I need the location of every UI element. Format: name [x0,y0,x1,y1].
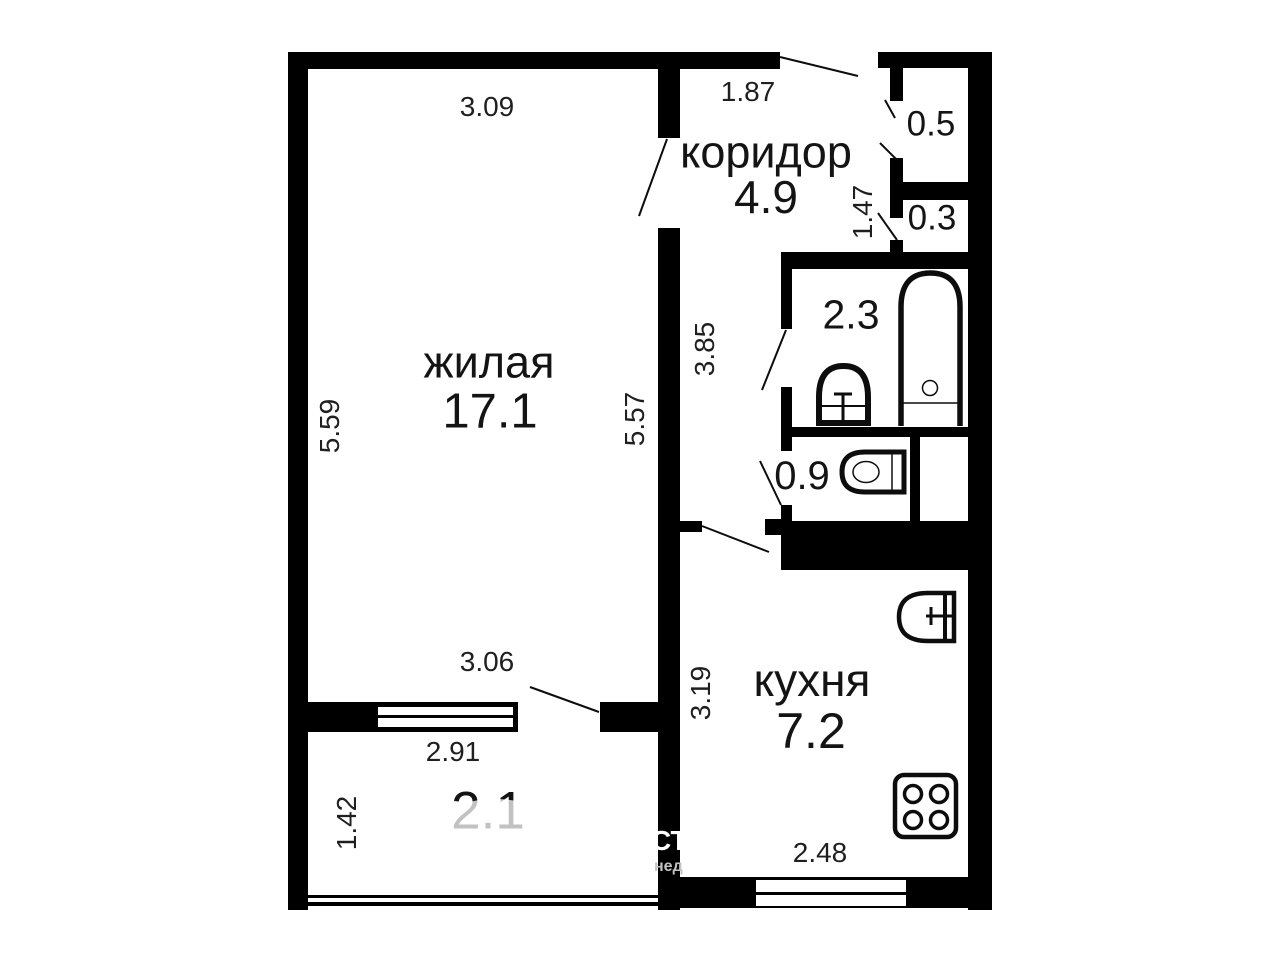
window-living-balcony [373,702,518,732]
storage-upper-area: 0.5 [907,107,956,142]
dim-living-top: 3.09 [460,93,515,121]
watermark-blob [445,799,545,843]
storage-lower-area: 0.3 [908,201,957,236]
wall-mid-upper [658,52,680,138]
stove-icon [895,775,956,837]
kitchen-sink-icon [899,593,954,641]
kitchen-name: кухня [754,657,871,703]
wall-closet-a [890,65,903,101]
dim-balcony-top: 2.91 [426,738,481,766]
dim-storage-left: 1.47 [849,185,877,240]
dim-living-right: 5.57 [621,392,649,447]
corridor-name: коридор [680,130,852,175]
watermark-line2: нед [654,859,683,875]
wall-living-bottom-left [305,702,373,732]
dim-kitchen-left: 3.19 [687,666,715,721]
entrance-door-line [780,57,858,76]
dim-living-left: 5.59 [316,399,344,454]
closet-upper-door-tick-1 [885,100,895,118]
dim-entry-top: 1.87 [721,78,776,106]
dim-corridor-left: 3.85 [691,322,719,377]
dim-living-bottom: 3.06 [460,648,515,676]
kitchen-door-leader [702,526,769,552]
dim-kitchen-bottom: 2.48 [793,839,848,867]
wall-top-left [288,52,780,69]
toilet-area: 0.9 [774,456,830,496]
dim-balcony-left: 1.42 [333,796,361,851]
toilet-icon [842,452,904,492]
bathroom-door-leaf [762,330,786,390]
wall-toilet-left-a [781,437,792,451]
dim-306-leader [530,687,599,712]
wall-living-bottom-right [600,702,658,732]
wall-notch [765,519,781,535]
living-room-name: жилая [424,340,555,385]
wall-right [968,52,992,910]
floorplan-canvas [0,0,1280,961]
wall-mid-lower [658,228,680,910]
wall-closet-d [890,240,903,254]
wall-closet-b [890,158,903,184]
closet-upper-door-tick-2 [880,143,897,160]
wall-kitchen-door-stub [680,521,702,532]
floorplan: жилая 17.1 коридор 4.9 кухня 7.2 2.3 0.9… [0,0,1280,961]
wall-left [288,52,308,910]
wall-bath-toilet-divider [781,427,968,437]
bathroom-area: 2.3 [823,295,880,336]
wall-bath-top [781,252,992,269]
watermark-line1: СТ [651,827,688,855]
balcony-railing [308,895,658,906]
kitchen-area: 7.2 [776,706,846,756]
corridor-area: 4.9 [734,174,798,220]
wall-toilet-right [910,437,920,526]
living-door-leaf [639,139,667,216]
wall-thick-bottom-of-toilet [781,521,992,570]
washbasin-icon [819,366,868,423]
wall-closet-c [890,200,903,218]
wall-bath-left-a [781,269,792,329]
wall-closet-divider [890,182,970,200]
living-room-area: 17.1 [442,388,537,437]
bathtub-icon [901,273,960,426]
